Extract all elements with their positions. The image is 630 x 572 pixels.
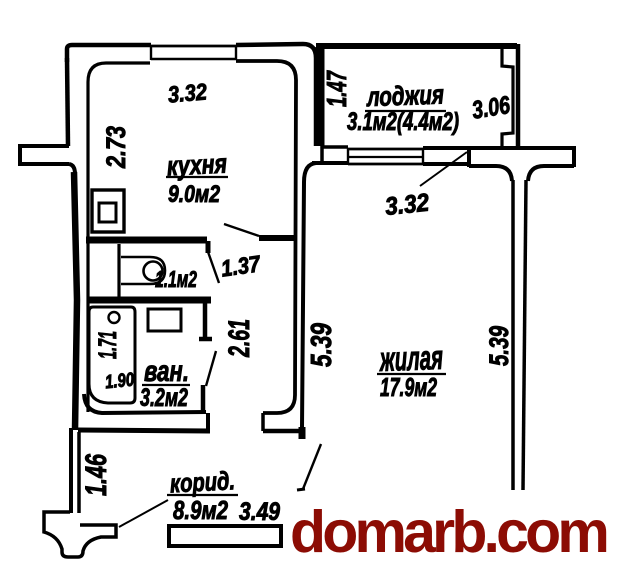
- svg-text:1.90: 1.90: [104, 369, 135, 393]
- svg-text:корид.: корид.: [169, 465, 235, 498]
- svg-text:2.61: 2.61: [223, 319, 256, 358]
- svg-text:9.0м2: 9.0м2: [168, 181, 221, 208]
- svg-text:1.37: 1.37: [219, 250, 262, 281]
- svg-text:5.39: 5.39: [306, 323, 338, 367]
- svg-text:3.1м2(4.4м2): 3.1м2(4.4м2): [347, 108, 459, 136]
- svg-text:1.46: 1.46: [80, 454, 113, 496]
- svg-text:2.73: 2.73: [101, 126, 131, 169]
- svg-text:domarb.com: domarb.com: [290, 499, 606, 565]
- svg-text:17.9м2: 17.9м2: [380, 372, 437, 402]
- svg-text:1.1м2: 1.1м2: [155, 266, 197, 292]
- svg-text:1.47: 1.47: [321, 70, 352, 107]
- svg-text:1.71: 1.71: [94, 331, 122, 359]
- svg-text:3.49: 3.49: [239, 498, 280, 526]
- svg-text:3.32: 3.32: [384, 189, 431, 221]
- svg-text:3.06: 3.06: [470, 91, 513, 125]
- svg-text:5.39: 5.39: [484, 326, 514, 366]
- svg-text:8.9м2: 8.9м2: [173, 495, 228, 525]
- svg-text:3.32: 3.32: [167, 78, 208, 107]
- svg-text:3.2м2: 3.2м2: [140, 384, 188, 412]
